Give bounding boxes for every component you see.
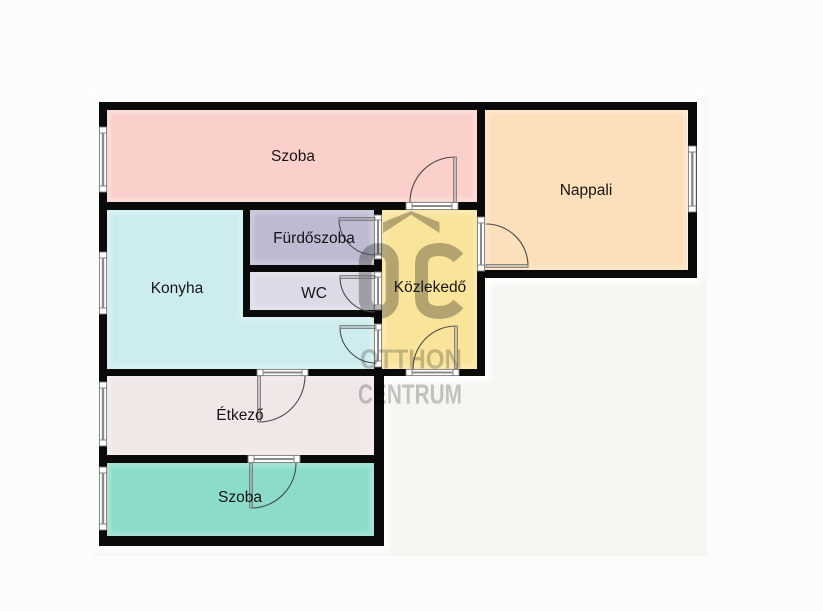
svg-text:Nappali: Nappali [560, 182, 613, 199]
svg-text:CENTRUM: CENTRUM [358, 379, 462, 410]
svg-text:Szoba: Szoba [218, 489, 262, 506]
svg-text:Konyha: Konyha [151, 280, 204, 297]
svg-text:Közlekedő: Közlekedő [394, 279, 466, 296]
svg-text:Fürdőszoba: Fürdőszoba [273, 230, 355, 247]
svg-text:Szoba: Szoba [271, 148, 315, 165]
svg-text:OTTHON: OTTHON [360, 344, 462, 375]
svg-text:WC: WC [301, 285, 327, 302]
svg-text:Étkező: Étkező [216, 407, 263, 424]
